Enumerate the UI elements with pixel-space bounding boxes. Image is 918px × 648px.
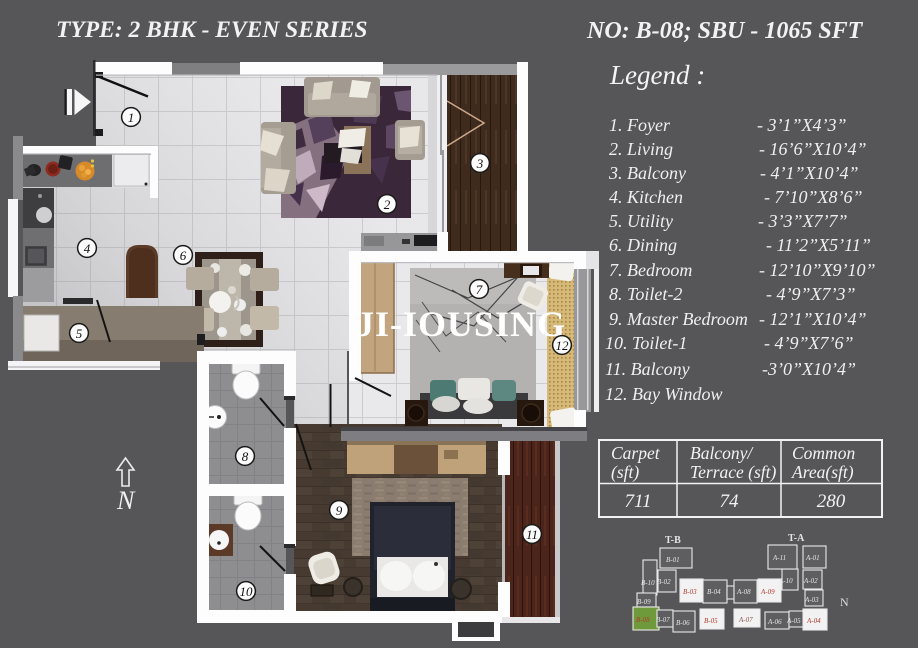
svg-text:A-05: A-05 [786, 617, 801, 625]
svg-text:T-B: T-B [665, 535, 681, 546]
svg-text:-3’0”X10’4”: -3’0”X10’4” [762, 359, 856, 379]
svg-text:- 3’1”X4’3”: - 3’1”X4’3” [757, 115, 847, 135]
svg-text:- 12’1”X10’4”: - 12’1”X10’4” [759, 309, 867, 329]
svg-text:- 4’9”X7’6”: - 4’9”X7’6” [764, 333, 854, 353]
svg-text:8: 8 [242, 449, 249, 464]
svg-text:B-04: B-04 [707, 588, 721, 596]
svg-text:B-10: B-10 [641, 579, 655, 587]
svg-text:B-06: B-06 [676, 619, 690, 627]
svg-text:12. Bay Window: 12. Bay Window [605, 384, 723, 404]
svg-text:1: 1 [128, 110, 135, 125]
svg-text:9: 9 [336, 503, 343, 518]
svg-text:Terrace (sft): Terrace (sft) [690, 462, 777, 482]
svg-text:A-01: A-01 [805, 554, 820, 562]
svg-text:2. Living: 2. Living [609, 139, 673, 159]
svg-text:B-03: B-03 [683, 588, 697, 596]
svg-text:74: 74 [720, 491, 740, 512]
svg-text:9. Master Bedroom: 9. Master Bedroom [609, 309, 748, 329]
svg-text:JI-IOUSING: JI-IOUSING [356, 304, 566, 344]
svg-text:NO: B-08; SBU - 1065 SFT: NO: B-08; SBU - 1065 SFT [586, 18, 864, 44]
svg-text:A-10: A-10 [778, 577, 793, 585]
svg-text:A-08: A-08 [736, 588, 751, 596]
svg-text:- 12’10”X9’10”: - 12’10”X9’10” [759, 260, 876, 280]
svg-text:N: N [840, 595, 849, 609]
svg-text:B-07: B-07 [656, 616, 670, 624]
svg-text:Legend :: Legend : [609, 60, 705, 90]
svg-text:A-06: A-06 [767, 618, 782, 626]
svg-text:A-02: A-02 [803, 577, 818, 585]
svg-text:B-08: B-08 [636, 616, 650, 624]
svg-text:A-03: A-03 [804, 596, 819, 604]
svg-text:4: 4 [84, 241, 91, 256]
svg-text:- 11’2”X5’11”: - 11’2”X5’11” [766, 235, 871, 255]
svg-text:- 4’9”X7’3”: - 4’9”X7’3” [766, 284, 856, 304]
svg-text:T-A: T-A [788, 533, 805, 544]
svg-text:A-11: A-11 [772, 554, 786, 562]
svg-text:11: 11 [526, 527, 538, 542]
svg-text:4. Kitchen: 4. Kitchen [609, 187, 683, 207]
svg-text:7. Bedroom: 7. Bedroom [609, 260, 692, 280]
svg-text:3. Balcony: 3. Balcony [608, 163, 686, 183]
svg-text:(sft): (sft) [611, 462, 639, 482]
svg-text:6: 6 [180, 248, 187, 263]
svg-text:10: 10 [240, 584, 254, 599]
svg-text:280: 280 [817, 491, 846, 512]
svg-text:3: 3 [476, 156, 484, 171]
svg-text:6. Dining: 6. Dining [609, 235, 677, 255]
svg-text:N: N [116, 486, 136, 515]
svg-text:Area(sft): Area(sft) [791, 462, 854, 482]
svg-text:711: 711 [624, 491, 651, 512]
svg-text:7: 7 [476, 282, 483, 297]
svg-text:2: 2 [384, 197, 391, 212]
svg-text:Carpet: Carpet [611, 443, 661, 463]
svg-text:- 16’6”X10’4”: - 16’6”X10’4” [759, 139, 867, 159]
svg-text:TYPE: 2 BHK - EVEN SERIES: TYPE: 2 BHK - EVEN SERIES [56, 17, 367, 43]
svg-text:A-07: A-07 [738, 616, 753, 624]
svg-text:- 7’10”X8’6”: - 7’10”X8’6” [764, 187, 863, 207]
svg-text:Common: Common [792, 443, 855, 463]
svg-text:B-02: B-02 [657, 578, 671, 586]
svg-text:A-04: A-04 [806, 617, 821, 625]
svg-text:1. Foyer: 1. Foyer [609, 115, 671, 135]
svg-text:- 3’3”X7’7”: - 3’3”X7’7” [758, 211, 848, 231]
svg-text:A-09: A-09 [760, 588, 775, 596]
svg-text:10. Toilet-1: 10. Toilet-1 [605, 333, 687, 353]
svg-text:Balcony/: Balcony/ [690, 443, 754, 463]
svg-text:5. Utility: 5. Utility [609, 211, 673, 231]
svg-text:B-09: B-09 [637, 598, 651, 606]
svg-text:11. Balcony: 11. Balcony [605, 359, 690, 379]
svg-text:5: 5 [76, 326, 83, 341]
svg-text:B-05: B-05 [704, 617, 718, 625]
svg-text:8. Toilet-2: 8. Toilet-2 [609, 284, 682, 304]
svg-text:B-01: B-01 [666, 556, 680, 564]
svg-text:- 4’1”X10’4”: - 4’1”X10’4” [760, 163, 859, 183]
